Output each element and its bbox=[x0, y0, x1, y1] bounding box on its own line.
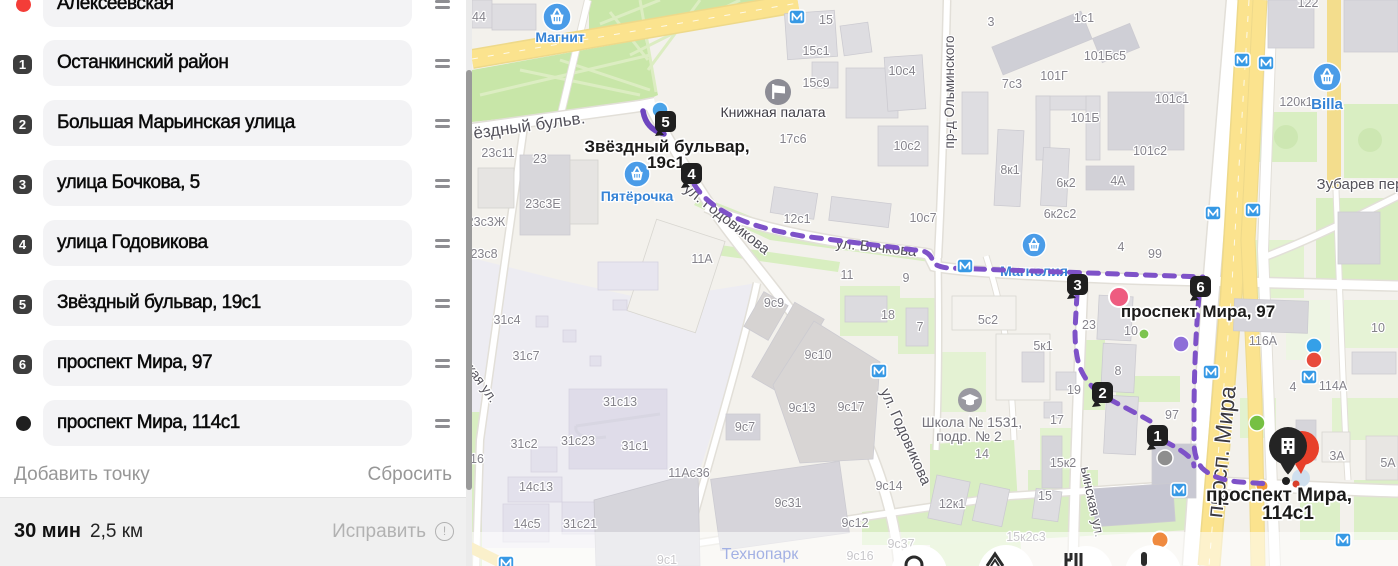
svg-text:101с1: 101с1 bbox=[1155, 92, 1189, 106]
svg-text:12к1: 12к1 bbox=[939, 497, 965, 511]
svg-text:116А: 116А bbox=[1249, 334, 1278, 348]
svg-text:5с2: 5с2 bbox=[978, 313, 998, 327]
svg-text:19: 19 bbox=[1067, 383, 1081, 397]
svg-text:19с1: 19с1 bbox=[647, 153, 685, 172]
svg-text:9: 9 bbox=[903, 271, 910, 285]
svg-text:проспект Мира, 97: проспект Мира, 97 bbox=[1121, 302, 1275, 321]
svg-text:8: 8 bbox=[1115, 364, 1122, 378]
svg-text:6: 6 bbox=[1196, 279, 1204, 296]
svg-text:18: 18 bbox=[881, 308, 895, 322]
svg-text:4А: 4А bbox=[1110, 174, 1126, 188]
svg-text:15с1: 15с1 bbox=[802, 44, 829, 58]
svg-text:11А: 11А bbox=[691, 252, 713, 266]
svg-text:подр. № 2: подр. № 2 bbox=[936, 428, 1002, 444]
svg-text:10с4: 10с4 bbox=[888, 64, 915, 78]
svg-text:Технопарк: Технопарк bbox=[722, 546, 800, 563]
svg-text:99: 99 bbox=[1148, 247, 1162, 261]
svg-text:3: 3 bbox=[1073, 277, 1081, 294]
svg-text:23с8: 23с8 bbox=[472, 247, 498, 261]
svg-text:31с2: 31с2 bbox=[510, 437, 537, 451]
svg-text:12с1: 12с1 bbox=[783, 212, 810, 226]
svg-text:9с13: 9с13 bbox=[788, 401, 815, 415]
svg-text:6к2: 6к2 bbox=[1056, 176, 1075, 190]
svg-text:23с3Е: 23с3Е bbox=[525, 197, 560, 211]
svg-text:10: 10 bbox=[1371, 321, 1385, 335]
svg-text:11: 11 bbox=[841, 268, 854, 282]
svg-text:Магнит: Магнит bbox=[535, 29, 585, 45]
svg-text:122: 122 bbox=[1298, 0, 1319, 10]
svg-text:14с13: 14с13 bbox=[519, 480, 553, 494]
svg-text:10с7: 10с7 bbox=[909, 211, 936, 225]
svg-text:9с31: 9с31 bbox=[774, 496, 801, 510]
svg-text:114А: 114А bbox=[1319, 379, 1348, 393]
svg-text:14: 14 bbox=[975, 447, 989, 461]
svg-text:5к1: 5к1 bbox=[1033, 339, 1052, 353]
svg-text:10с2: 10с2 bbox=[893, 139, 920, 153]
svg-text:23с11: 23с11 bbox=[481, 146, 514, 160]
svg-text:3: 3 bbox=[988, 15, 995, 29]
svg-text:44: 44 bbox=[472, 10, 486, 24]
svg-text:16: 16 bbox=[472, 452, 484, 466]
svg-text:5А: 5А bbox=[1380, 456, 1396, 470]
svg-text:9с7: 9с7 bbox=[735, 420, 755, 434]
svg-text:14с5: 14с5 bbox=[513, 517, 540, 531]
svg-text:7: 7 bbox=[917, 320, 924, 334]
svg-text:101Бс5: 101Бс5 bbox=[1084, 49, 1126, 63]
svg-text:11Ас36: 11Ас36 bbox=[668, 466, 710, 480]
svg-text:17с6: 17с6 bbox=[779, 132, 806, 146]
svg-text:15: 15 bbox=[1038, 489, 1052, 503]
svg-text:Зубарев пер: Зубарев пер bbox=[1317, 176, 1398, 193]
svg-text:23с3Ж: 23с3Ж bbox=[472, 215, 506, 229]
svg-text:9с9: 9с9 bbox=[764, 296, 784, 310]
svg-text:31с7: 31с7 bbox=[512, 349, 539, 363]
svg-text:6к2с2: 6к2с2 bbox=[1044, 207, 1077, 221]
svg-text:31с4: 31с4 bbox=[493, 313, 520, 327]
svg-text:120к1: 120к1 bbox=[1279, 95, 1312, 109]
svg-text:15к2: 15к2 bbox=[1050, 456, 1076, 470]
svg-text:Пятёрочка: Пятёрочка bbox=[601, 188, 674, 204]
svg-text:5: 5 bbox=[661, 114, 669, 131]
svg-text:114с1: 114с1 bbox=[1262, 503, 1314, 524]
svg-text:101с2: 101с2 bbox=[1133, 144, 1167, 158]
svg-text:1с1: 1с1 bbox=[1074, 11, 1094, 25]
svg-text:7с3: 7с3 bbox=[1002, 77, 1022, 91]
svg-text:10: 10 bbox=[1124, 324, 1138, 338]
svg-text:Billa: Billa bbox=[1311, 96, 1343, 113]
svg-text:15: 15 bbox=[819, 13, 833, 27]
svg-text:4: 4 bbox=[1118, 240, 1125, 254]
svg-text:23: 23 bbox=[533, 152, 547, 166]
svg-text:31с23: 31с23 bbox=[561, 434, 595, 448]
svg-text:пр-д Ольминского: пр-д Ольминского bbox=[942, 36, 957, 149]
svg-text:23: 23 bbox=[1082, 318, 1096, 332]
svg-text:8к1: 8к1 bbox=[1000, 163, 1019, 177]
svg-text:1: 1 bbox=[1153, 428, 1161, 445]
svg-text:9с14: 9с14 bbox=[875, 479, 902, 493]
svg-text:31с13: 31с13 bbox=[603, 395, 637, 409]
svg-text:9с17: 9с17 bbox=[837, 400, 864, 414]
svg-text:Книжная палата: Книжная палата bbox=[720, 104, 825, 120]
svg-text:9с10: 9с10 bbox=[804, 348, 831, 362]
svg-text:15с9: 15с9 bbox=[802, 76, 829, 90]
svg-text:97: 97 bbox=[1165, 408, 1179, 422]
svg-text:3А: 3А bbox=[1329, 449, 1345, 463]
svg-text:9с12: 9с12 bbox=[841, 516, 868, 530]
svg-text:101Б: 101Б bbox=[1070, 111, 1099, 125]
svg-text:4: 4 bbox=[1290, 380, 1297, 394]
svg-text:31с21: 31с21 bbox=[563, 517, 597, 531]
svg-text:101Г: 101Г bbox=[1040, 69, 1068, 83]
svg-text:2: 2 bbox=[1098, 385, 1106, 402]
svg-text:17: 17 bbox=[1050, 413, 1064, 427]
svg-text:4: 4 bbox=[687, 166, 696, 183]
svg-text:31с1: 31с1 bbox=[621, 439, 648, 453]
